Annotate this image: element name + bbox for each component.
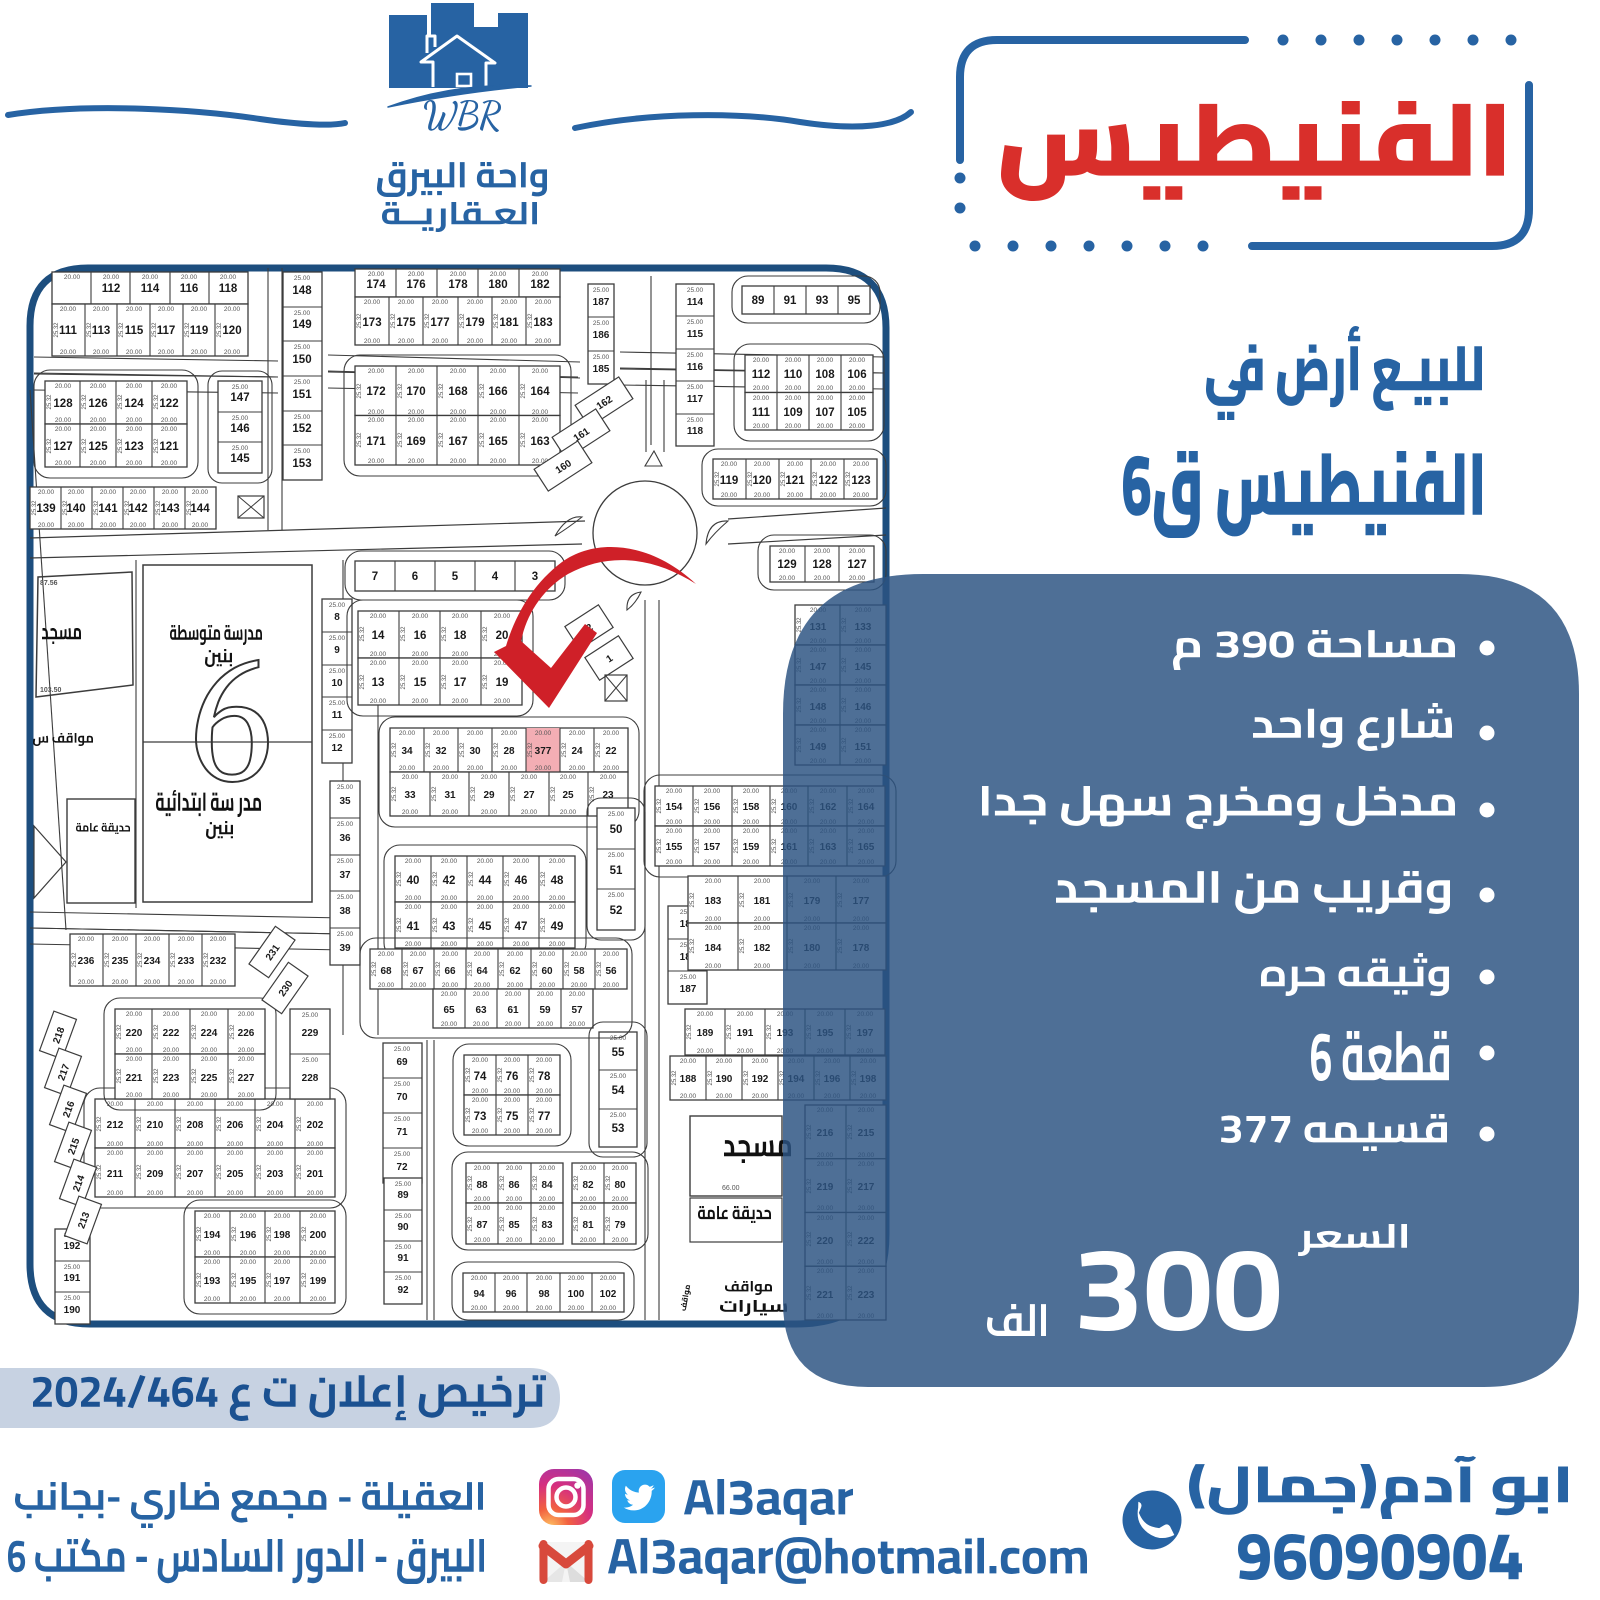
svg-text:20.00: 20.00 [55,417,72,424]
svg-text:67: 67 [412,966,424,977]
svg-text:20.00: 20.00 [147,1150,164,1157]
svg-text:20.00: 20.00 [452,660,469,667]
svg-text:77: 77 [538,1111,551,1123]
svg-text:114: 114 [687,297,704,308]
svg-text:20.00: 20.00 [161,417,178,424]
svg-text:20.00: 20.00 [398,338,415,345]
svg-text:20.00: 20.00 [442,774,459,781]
svg-text:187: 187 [680,984,697,995]
svg-text:20.00: 20.00 [450,458,467,465]
svg-text:20.00: 20.00 [408,368,425,375]
svg-text:25.32: 25.32 [469,917,475,933]
svg-text:20.00: 20.00 [506,1237,523,1244]
svg-text:20.00: 20.00 [405,941,422,948]
svg-text:93: 93 [816,295,829,307]
svg-text:74: 74 [474,1071,487,1083]
svg-text:25.00: 25.00 [394,1046,411,1053]
svg-text:20.00: 20.00 [238,1011,255,1018]
svg-text:20.00: 20.00 [227,1101,244,1108]
svg-text:20.00: 20.00 [238,1056,255,1063]
svg-text:20.00: 20.00 [569,991,586,998]
svg-text:127: 127 [847,559,866,571]
svg-text:105: 105 [847,407,867,419]
svg-text:20.00: 20.00 [501,338,518,345]
svg-text:38: 38 [339,906,351,917]
svg-text:62: 62 [509,966,521,977]
svg-text:57: 57 [571,1005,583,1016]
svg-text:20.00: 20.00 [442,809,459,816]
svg-text:20.00: 20.00 [452,651,469,658]
svg-text:20.00: 20.00 [238,1047,255,1054]
svg-text:20.00: 20.00 [90,460,107,467]
svg-text:227: 227 [238,1073,255,1084]
svg-text:212: 212 [107,1120,124,1131]
svg-text:20.00: 20.00 [368,368,385,375]
svg-text:202: 202 [307,1120,324,1131]
svg-text:20.00: 20.00 [187,1150,204,1157]
svg-text:64: 64 [476,966,488,977]
svg-text:20.00: 20.00 [612,1237,629,1244]
svg-text:221: 221 [126,1073,143,1084]
svg-text:20.00: 20.00 [55,460,72,467]
svg-text:20.00: 20.00 [817,395,834,402]
svg-text:51: 51 [610,865,623,877]
svg-text:20.00: 20.00 [158,306,175,313]
svg-text:20.00: 20.00 [432,338,449,345]
svg-text:20.00: 20.00 [240,1213,257,1220]
svg-text:25.32: 25.32 [154,438,160,454]
svg-text:206: 206 [227,1120,244,1131]
svg-text:25.32: 25.32 [530,1067,536,1083]
svg-text:226: 226 [238,1028,255,1039]
svg-text:25.32: 25.32 [597,961,603,977]
svg-text:20.00: 20.00 [474,951,491,958]
svg-text:20.00: 20.00 [452,613,469,620]
svg-text:25.32: 25.32 [398,383,404,399]
svg-text:20.00: 20.00 [532,417,549,424]
svg-text:25.32: 25.32 [574,1175,580,1191]
svg-text:20.00: 20.00 [307,1150,324,1157]
svg-text:15: 15 [414,677,427,689]
svg-text:20.00: 20.00 [192,489,209,496]
svg-text:20.00: 20.00 [571,951,588,958]
svg-text:20.00: 20.00 [600,1275,617,1282]
svg-text:20.00: 20.00 [474,982,491,989]
svg-text:12: 12 [331,743,343,754]
svg-text:20.00: 20.00 [477,895,494,902]
svg-text:25.32: 25.32 [360,626,366,642]
svg-text:25.32: 25.32 [596,742,602,758]
svg-text:25.32: 25.32 [267,1272,273,1288]
svg-text:20.00: 20.00 [504,1128,521,1135]
svg-text:25.32: 25.32 [533,961,539,977]
svg-text:20.00: 20.00 [705,916,722,923]
svg-text:118: 118 [219,283,238,295]
svg-text:90: 90 [397,1222,409,1233]
svg-text:25.00: 25.00 [232,384,249,391]
svg-text:5: 5 [452,571,459,583]
svg-text:190: 190 [64,1305,81,1316]
svg-text:20.00: 20.00 [549,941,566,948]
svg-text:20.00: 20.00 [472,1097,489,1104]
svg-text:20.00: 20.00 [368,458,385,465]
svg-text:20.00: 20.00 [853,461,870,468]
svg-text:121: 121 [785,475,805,487]
svg-text:25.00: 25.00 [394,1116,411,1123]
svg-text:20.00: 20.00 [537,1021,554,1028]
svg-text:20.00: 20.00 [481,774,498,781]
svg-text:25.32: 25.32 [483,626,489,642]
svg-text:111: 111 [752,407,771,419]
svg-text:71: 71 [396,1127,408,1138]
svg-text:25.00: 25.00 [395,1275,412,1282]
svg-text:25.00: 25.00 [394,1151,411,1158]
svg-text:37: 37 [339,870,351,881]
svg-text:20.00: 20.00 [307,1141,324,1148]
svg-text:181: 181 [499,317,519,329]
svg-text:35: 35 [339,796,351,807]
svg-text:25.32: 25.32 [360,674,366,690]
svg-text:20.00: 20.00 [536,1128,553,1135]
svg-text:25.00: 25.00 [610,1073,627,1080]
svg-text:20.00: 20.00 [481,809,498,816]
svg-text:87: 87 [476,1220,488,1231]
svg-text:20.00: 20.00 [600,1305,617,1312]
svg-text:20.00: 20.00 [705,878,722,885]
svg-text:20.00: 20.00 [849,357,866,364]
svg-text:20.00: 20.00 [504,1057,521,1064]
svg-text:164: 164 [530,386,550,398]
svg-text:20.00: 20.00 [743,788,760,795]
svg-text:155: 155 [666,842,683,853]
svg-text:25.32: 25.32 [197,1226,203,1242]
svg-text:177: 177 [430,317,449,329]
svg-text:20.00: 20.00 [130,489,147,496]
svg-text:31: 31 [444,790,456,801]
svg-text:25.00: 25.00 [302,1057,319,1064]
svg-text:25.32: 25.32 [177,1116,183,1132]
svg-text:20.00: 20.00 [238,1092,255,1099]
svg-text:25.32: 25.32 [232,1272,238,1288]
svg-text:25.32: 25.32 [687,1024,693,1040]
svg-text:20.00: 20.00 [820,461,837,468]
svg-text:20.00: 20.00 [267,1150,284,1157]
svg-text:81: 81 [582,1220,594,1231]
svg-text:25.32: 25.32 [460,742,466,758]
svg-text:201: 201 [307,1169,324,1180]
svg-text:20.00: 20.00 [112,979,129,986]
svg-text:25.32: 25.32 [401,626,407,642]
svg-text:120: 120 [752,475,771,487]
svg-text:20.00: 20.00 [817,423,834,430]
svg-text:191: 191 [737,1028,754,1039]
svg-text:25.32: 25.32 [72,952,78,968]
svg-text:119: 119 [190,325,209,337]
svg-text:25.32: 25.32 [500,961,506,977]
svg-text:207: 207 [187,1169,204,1180]
svg-text:20.00: 20.00 [126,1011,143,1018]
svg-text:124: 124 [124,398,144,410]
svg-text:33: 33 [404,790,416,801]
svg-text:76: 76 [506,1071,519,1083]
svg-text:25.32: 25.32 [117,1068,123,1084]
svg-text:25.32: 25.32 [397,871,403,887]
svg-text:25.32: 25.32 [533,1216,539,1232]
svg-text:20.00: 20.00 [704,828,721,835]
svg-text:25.32: 25.32 [606,1216,612,1232]
svg-text:20.00: 20.00 [666,788,683,795]
svg-text:20: 20 [496,630,509,642]
svg-text:224: 224 [201,1028,218,1039]
svg-text:25.00: 25.00 [608,892,625,899]
svg-text:20.00: 20.00 [549,895,566,902]
svg-text:70: 70 [396,1092,408,1103]
svg-text:25.00: 25.00 [329,602,346,609]
svg-text:44: 44 [479,875,492,887]
svg-text:20.00: 20.00 [536,1305,553,1312]
svg-text:25.32: 25.32 [297,1164,303,1180]
svg-text:20.00: 20.00 [227,1190,244,1197]
svg-text:25.32: 25.32 [494,313,500,329]
svg-text:116: 116 [687,362,704,373]
svg-text:20.00: 20.00 [178,936,195,943]
svg-text:156: 156 [704,802,721,813]
svg-text:20.00: 20.00 [442,951,459,958]
svg-text:25.32: 25.32 [230,1024,236,1040]
svg-text:20.00: 20.00 [849,575,866,582]
svg-text:25.32: 25.32 [171,952,177,968]
svg-text:20.00: 20.00 [849,395,866,402]
svg-text:20.00: 20.00 [147,1190,164,1197]
svg-text:20.00: 20.00 [187,1101,204,1108]
svg-text:25.00: 25.00 [329,700,346,707]
svg-text:20.00: 20.00 [612,1165,629,1172]
svg-text:20.00: 20.00 [666,859,683,866]
svg-text:25.32: 25.32 [468,1175,474,1191]
svg-text:20.00: 20.00 [753,423,770,430]
svg-text:25.00: 25.00 [64,1295,81,1302]
svg-text:20.00: 20.00 [399,730,416,737]
svg-text:20.00: 20.00 [536,1057,553,1064]
svg-text:25.32: 25.32 [500,1216,506,1232]
svg-text:25.32: 25.32 [138,952,144,968]
svg-text:25.32: 25.32 [734,798,740,814]
svg-text:220: 220 [126,1028,143,1039]
svg-text:25.32: 25.32 [657,798,663,814]
svg-text:20.00: 20.00 [787,492,804,499]
svg-text:52: 52 [610,905,623,917]
svg-text:20.00: 20.00 [513,858,530,865]
svg-text:20.00: 20.00 [752,1093,769,1100]
svg-text:25.00: 25.00 [294,379,311,386]
svg-text:20.00: 20.00 [126,383,143,390]
svg-text:25.32: 25.32 [125,500,131,516]
svg-text:25.32: 25.32 [734,838,740,854]
svg-text:25.32: 25.32 [357,432,363,448]
svg-text:20.00: 20.00 [162,522,179,529]
svg-text:20.00: 20.00 [402,809,419,816]
svg-text:20.00: 20.00 [38,522,55,529]
svg-text:20.00: 20.00 [474,1165,491,1172]
svg-text:20.00: 20.00 [450,417,467,424]
svg-text:16: 16 [414,630,427,642]
svg-text:20.00: 20.00 [505,991,522,998]
svg-text:20.00: 20.00 [705,925,722,932]
svg-text:165: 165 [488,436,508,448]
svg-text:47: 47 [515,921,528,933]
svg-text:25.32: 25.32 [433,917,439,933]
svg-text:20.00: 20.00 [603,982,620,989]
svg-text:25.00: 25.00 [337,894,354,901]
svg-text:182: 182 [754,943,771,954]
svg-text:20.00: 20.00 [310,1250,327,1257]
svg-text:25.00: 25.00 [337,821,354,828]
svg-text:186: 186 [593,330,610,341]
svg-text:20.00: 20.00 [467,299,484,306]
svg-text:20.00: 20.00 [408,458,425,465]
svg-text:25.00: 25.00 [232,415,249,422]
svg-text:125: 125 [88,441,108,453]
svg-text:234: 234 [144,956,161,967]
svg-text:25.32: 25.32 [436,961,442,977]
svg-text:20.00: 20.00 [580,1196,597,1203]
svg-text:25.32: 25.32 [117,1024,123,1040]
svg-text:129: 129 [777,559,796,571]
svg-text:166: 166 [488,386,507,398]
svg-text:20.00: 20.00 [580,1237,597,1244]
svg-text:25.32: 25.32 [466,1107,472,1123]
svg-text:9: 9 [334,645,340,656]
svg-text:20.00: 20.00 [68,489,85,496]
svg-text:20.00: 20.00 [473,1021,490,1028]
svg-text:191: 191 [64,1273,81,1284]
svg-text:25.00: 25.00 [337,784,354,791]
svg-text:20.00: 20.00 [204,1213,221,1220]
svg-text:20.00: 20.00 [144,979,161,986]
svg-text:20.00: 20.00 [569,765,586,772]
svg-text:20.00: 20.00 [161,426,178,433]
svg-text:25.32: 25.32 [118,394,124,410]
svg-text:20.00: 20.00 [666,828,683,835]
svg-text:25.32: 25.32 [468,961,474,977]
svg-text:20.00: 20.00 [471,1305,488,1312]
svg-text:78: 78 [538,1071,551,1083]
svg-text:114: 114 [141,283,160,295]
svg-text:25.32: 25.32 [690,892,696,908]
svg-text:20.00: 20.00 [494,613,511,620]
svg-text:20.00: 20.00 [580,1165,597,1172]
svg-text:25.32: 25.32 [813,471,819,487]
svg-text:181: 181 [754,896,771,907]
svg-text:25.32: 25.32 [748,471,754,487]
svg-text:20.00: 20.00 [532,368,549,375]
svg-text:20.00: 20.00 [370,698,387,705]
svg-text:20.00: 20.00 [568,1305,585,1312]
svg-text:32: 32 [435,746,447,757]
svg-text:236: 236 [78,956,95,967]
svg-text:107: 107 [815,407,834,419]
svg-text:118: 118 [687,426,704,437]
svg-text:20.00: 20.00 [705,963,722,970]
svg-text:20.00: 20.00 [100,489,117,496]
svg-text:225: 225 [201,1073,218,1084]
svg-text:54: 54 [612,1085,625,1097]
svg-text:172: 172 [366,386,385,398]
svg-text:25.32: 25.32 [533,1175,539,1191]
svg-text:20.00: 20.00 [201,1047,218,1054]
svg-text:25.00: 25.00 [610,1112,627,1119]
svg-text:25.32: 25.32 [154,1068,160,1084]
svg-text:25.32: 25.32 [217,1164,223,1180]
svg-text:25.32: 25.32 [391,313,397,329]
svg-text:176: 176 [406,279,425,291]
svg-text:139: 139 [36,503,55,515]
svg-text:20.00: 20.00 [274,1250,291,1257]
svg-text:20.00: 20.00 [210,979,227,986]
svg-text:20.00: 20.00 [90,383,107,390]
svg-text:20.00: 20.00 [112,936,129,943]
svg-text:20.00: 20.00 [539,982,556,989]
svg-text:178: 178 [448,279,468,291]
svg-text:112: 112 [752,369,771,381]
svg-text:203: 203 [267,1169,284,1180]
svg-text:20.00: 20.00 [754,916,771,923]
svg-text:20.00: 20.00 [227,1150,244,1157]
svg-text:25.32: 25.32 [498,1107,504,1123]
svg-text:167: 167 [448,436,467,448]
svg-text:20.00: 20.00 [849,423,866,430]
svg-text:25.32: 25.32 [47,394,53,410]
svg-text:128: 128 [53,398,73,410]
svg-text:200: 200 [310,1230,327,1241]
svg-text:232: 232 [210,956,227,967]
svg-text:25.00: 25.00 [608,811,625,818]
svg-text:25.00: 25.00 [395,1244,412,1251]
svg-text:204: 204 [267,1120,284,1131]
svg-text:109: 109 [783,407,802,419]
svg-text:25.32: 25.32 [154,1024,160,1040]
svg-text:25: 25 [562,790,574,801]
svg-text:20.00: 20.00 [506,1165,523,1172]
svg-text:92: 92 [397,1285,409,1296]
svg-text:20.00: 20.00 [743,819,760,826]
svg-text:20.00: 20.00 [467,338,484,345]
svg-text:25.32: 25.32 [439,383,445,399]
svg-text:25.32: 25.32 [500,1175,506,1191]
svg-text:42: 42 [443,875,456,887]
svg-text:25.32: 25.32 [528,742,534,758]
svg-text:183: 183 [533,317,552,329]
svg-text:20.00: 20.00 [752,1058,769,1065]
svg-text:20.00: 20.00 [163,1056,180,1063]
svg-text:20.00: 20.00 [536,1097,553,1104]
svg-text:20.00: 20.00 [817,385,834,392]
svg-text:185: 185 [593,364,610,375]
svg-text:20.00: 20.00 [612,1196,629,1203]
svg-text:25.32: 25.32 [715,471,721,487]
svg-text:20.00: 20.00 [191,349,208,356]
svg-text:25.32: 25.32 [541,917,547,933]
svg-text:25.32: 25.32 [528,313,534,329]
svg-text:20.00: 20.00 [467,730,484,737]
svg-text:20.00: 20.00 [130,522,147,529]
svg-text:39: 39 [339,943,351,954]
svg-text:25.32: 25.32 [82,438,88,454]
svg-text:123: 123 [124,441,143,453]
svg-text:25.32: 25.32 [54,322,60,338]
svg-text:20.00: 20.00 [697,1011,714,1018]
svg-text:69: 69 [396,1057,408,1068]
